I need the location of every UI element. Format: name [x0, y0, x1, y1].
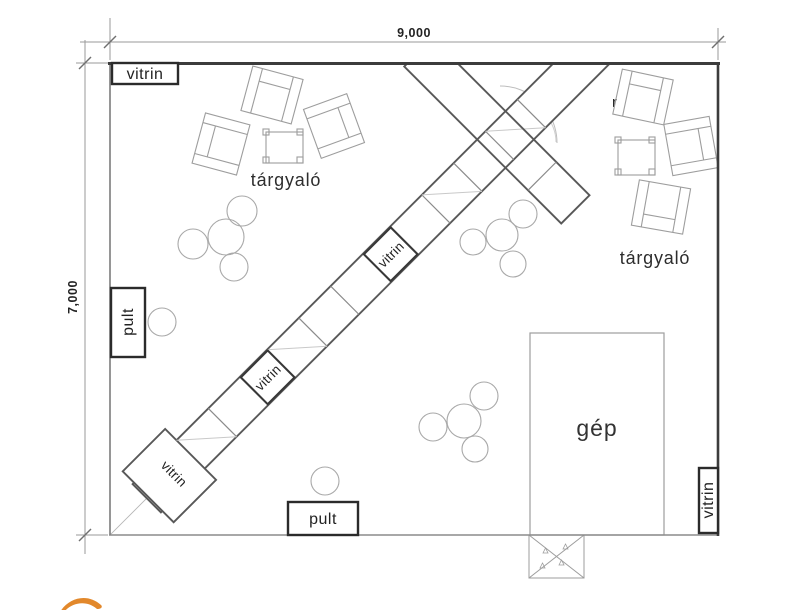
floor-plan-drawing: 9,000 7,000	[0, 0, 800, 610]
sofa	[192, 113, 250, 175]
vitrin-right-label: vitrin	[700, 482, 717, 519]
dimension-width-label: 9,000	[397, 26, 431, 40]
machine-label: gép	[576, 415, 617, 441]
sofa	[664, 116, 718, 175]
logo-fragment	[60, 598, 102, 610]
pult-bottom-box: pult	[288, 502, 358, 535]
meeting-group-left: tárgyaló	[192, 66, 364, 190]
vitrin-top-left-box: vitrin	[112, 63, 178, 84]
table	[263, 129, 303, 163]
meeting-room-right-label: tárgyaló	[620, 248, 690, 268]
stool-cluster-center	[460, 200, 537, 277]
vitrin-top-left-label: vitrin	[127, 66, 164, 83]
stool	[311, 467, 339, 495]
dimension-height-label: 7,000	[66, 280, 80, 314]
vitrin-right-box: vitrin	[699, 468, 718, 533]
meeting-group-right: r tárgyaló	[612, 69, 718, 268]
table	[615, 137, 655, 175]
sofa	[303, 94, 364, 159]
cross-box	[529, 535, 584, 578]
stool	[148, 308, 176, 336]
machine-area: gép	[530, 333, 664, 535]
pult-left-label: pult	[120, 308, 137, 336]
stool-cluster-bottom	[419, 382, 498, 462]
meeting-room-left-label: tárgyaló	[251, 170, 321, 190]
pult-left-box: pult	[111, 288, 145, 357]
pult-bottom-label: pult	[309, 511, 337, 528]
sofa	[631, 180, 690, 234]
floor-plan-page: 9,000 7,000	[0, 0, 800, 610]
stool-cluster-left	[178, 196, 257, 281]
sofa	[613, 69, 673, 125]
sofa	[241, 66, 303, 124]
